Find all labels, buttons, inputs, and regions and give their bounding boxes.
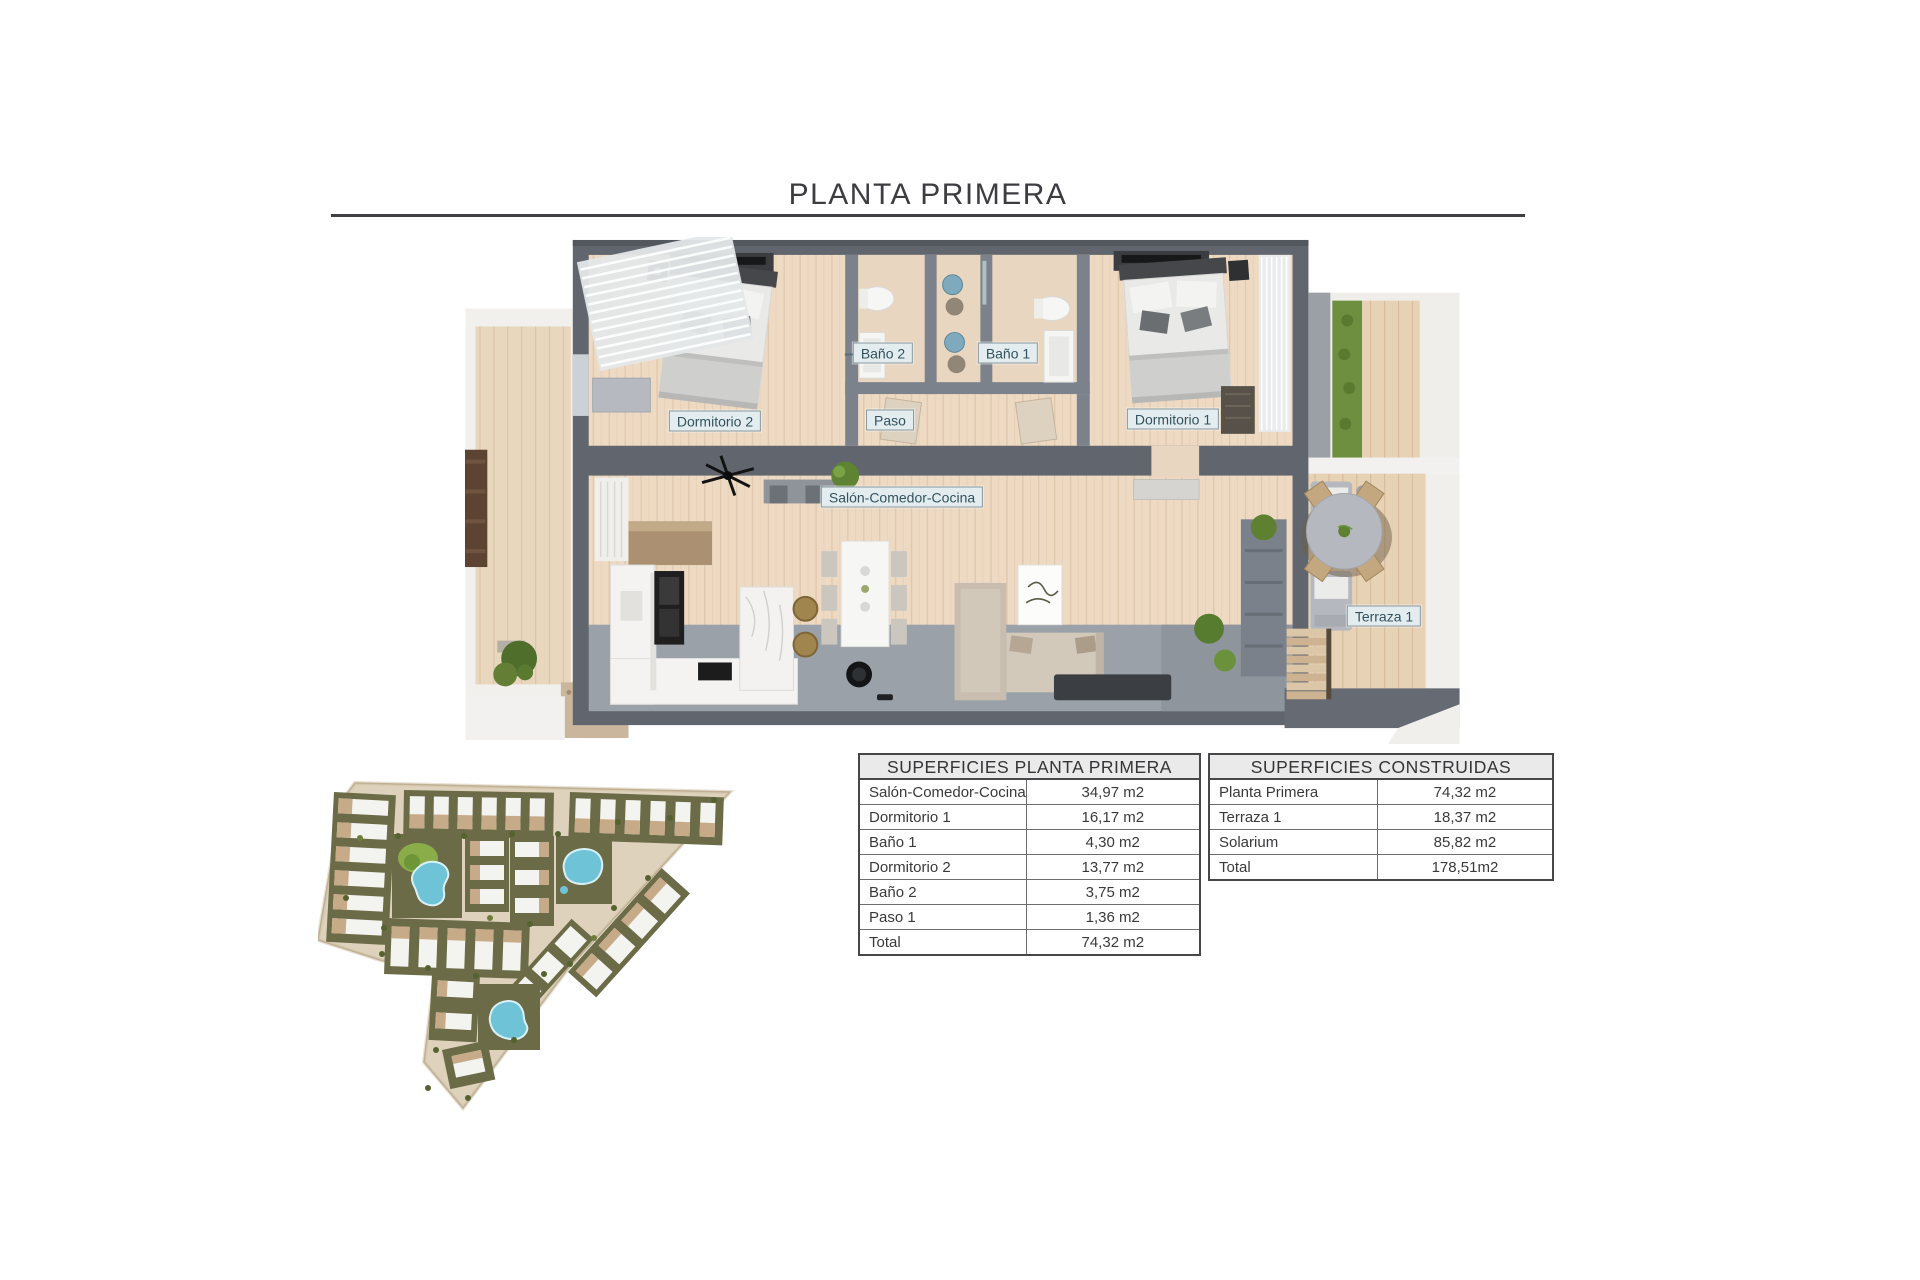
room-label-bano-1: Baño 1 [978, 343, 1038, 364]
row-label: Baño 1 [860, 830, 1027, 854]
row-value: 13,77 m2 [1027, 855, 1199, 879]
row-label: Salón-Comedor-Cocina [860, 780, 1027, 804]
row-label: Baño 2 [860, 880, 1027, 904]
built-surfaces-table: SUPERFICIES CONSTRUIDAS Planta Primera 7… [1208, 753, 1554, 881]
table-row: Salón-Comedor-Cocina 34,97 m2 [860, 780, 1199, 804]
row-value: 74,32 m2 [1378, 780, 1552, 804]
room-label-terraza-1: Terraza 1 [1347, 606, 1421, 627]
room-label-paso: Paso [866, 410, 914, 431]
row-value: 1,36 m2 [1027, 905, 1199, 929]
pool-3 [490, 1001, 528, 1039]
terrace-table-set [1301, 481, 1392, 581]
site-plan [318, 778, 750, 1118]
pool-garden-1 [392, 834, 462, 918]
table-row: Planta Primera 74,32 m2 [1210, 780, 1552, 804]
window-blinds-1 [1259, 255, 1291, 432]
title-rule [331, 214, 1525, 217]
table-row: Dormitorio 1 16,17 m2 [860, 804, 1199, 829]
shelf-unit [1241, 514, 1287, 676]
room-label-dormitorio-1: Dormitorio 1 [1127, 409, 1219, 430]
table-row: Terraza 1 18,37 m2 [1210, 804, 1552, 829]
row-value: 18,37 m2 [1378, 805, 1552, 829]
row-label: Terraza 1 [1210, 805, 1378, 829]
row-value: 34,97 m2 [1027, 780, 1199, 804]
pergola [465, 450, 487, 567]
pool-garden-2 [556, 836, 612, 904]
row-label: Total [860, 930, 1027, 954]
table-row: Paso 1 1,36 m2 [860, 904, 1199, 929]
room-label-bano-2: Baño 2 [853, 343, 913, 364]
table-row: Baño 1 4,30 m2 [860, 829, 1199, 854]
room-label-salon: Salón-Comedor-Cocina [821, 487, 983, 508]
row-value: 178,51m2 [1378, 855, 1552, 879]
table-row: Total 74,32 m2 [860, 929, 1199, 954]
row-value: 3,75 m2 [1027, 880, 1199, 904]
pool-2 [564, 849, 603, 884]
row-label: Solarium [1210, 830, 1378, 854]
dining-set [821, 541, 906, 646]
brochure-page: PLANTA PRIMERA [0, 0, 1920, 1280]
table-title: SUPERFICIES PLANTA PRIMERA [860, 755, 1199, 780]
row-value: 74,32 m2 [1027, 930, 1199, 954]
table-row: Solarium 85,82 m2 [1210, 829, 1552, 854]
table-title: SUPERFICIES CONSTRUIDAS [1210, 755, 1552, 780]
table-row: Baño 2 3,75 m2 [860, 879, 1199, 904]
wall-art [1018, 565, 1062, 625]
page-title: PLANTA PRIMERA [331, 178, 1525, 212]
room-label-dormitorio-2: Dormitorio 2 [669, 411, 761, 432]
row-value: 16,17 m2 [1027, 805, 1199, 829]
table-row: Dormitorio 2 13,77 m2 [860, 854, 1199, 879]
bedroom-2 [573, 237, 778, 416]
row-label: Total [1210, 855, 1378, 879]
row-label: Dormitorio 1 [860, 805, 1027, 829]
surfaces-table-planta-primera: SUPERFICIES PLANTA PRIMERA Salón-Comedor… [858, 753, 1201, 956]
row-value: 85,82 m2 [1378, 830, 1552, 854]
table-row: Total 178,51m2 [1210, 854, 1552, 879]
garden-strip [1308, 293, 1459, 474]
row-value: 4,30 m2 [1027, 830, 1199, 854]
row-label: Dormitorio 2 [860, 855, 1027, 879]
row-label: Planta Primera [1210, 780, 1378, 804]
pool-garden-3 [478, 984, 540, 1050]
row-label: Paso 1 [860, 905, 1027, 929]
